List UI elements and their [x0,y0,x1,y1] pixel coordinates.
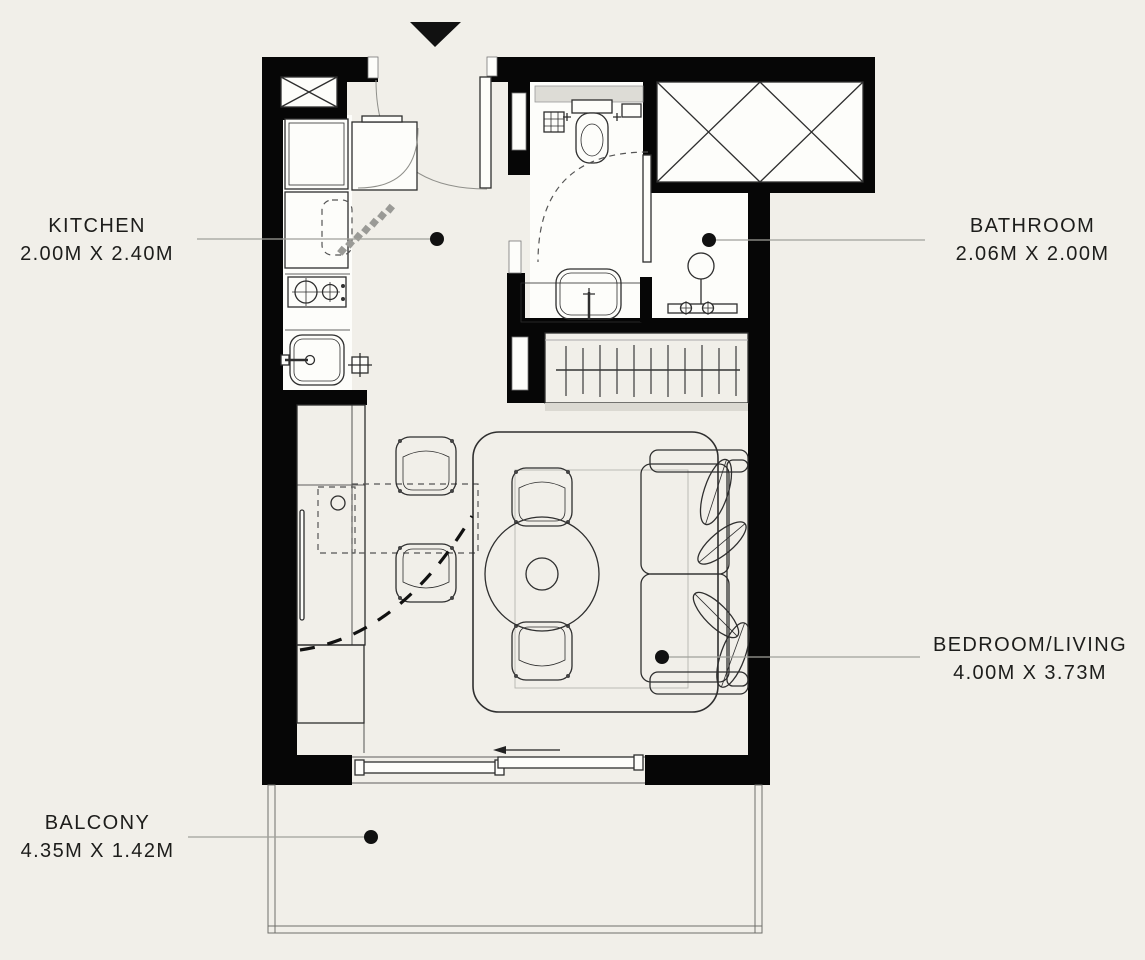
bedroom-living-label: BEDROOM/LIVING 4.00M X 3.73M [925,631,1135,687]
living-area [297,405,756,753]
balcony-label: BALCONY 4.35M X 1.42M [10,809,185,865]
wall [863,82,875,193]
wall [507,318,748,333]
door-pocket [512,337,528,390]
door-pocket [512,93,526,150]
corner-duct [281,77,337,107]
sofa-armrest [650,672,748,694]
wall [643,182,873,193]
area-rug [473,432,718,712]
desk-handle [300,510,304,620]
sliding-door-panel [357,762,502,773]
under-desk-unit-dashed [318,487,355,553]
elevator-shaft [657,82,863,182]
bathroom-door-leaf [643,155,651,262]
balcony-label-name: BALCONY [10,809,185,837]
balcony-label-dims: 4.35M X 1.42M [10,837,185,865]
wall [262,82,283,402]
bedroom-leader-dot [655,650,669,664]
door-jamb [509,241,521,273]
kitchen-label-dims: 2.00M X 2.40M [12,240,182,268]
round-table [485,517,599,631]
entry-arrow-icon [410,22,461,47]
door-jamb [368,57,378,78]
balcony-leader-dot [364,830,378,844]
entry-door-leaf [480,77,491,188]
wall [645,755,770,785]
sofa-seat [641,574,729,682]
wall [262,402,297,755]
kitchen-hob [288,277,346,307]
floor-plan-page: { "colors":{ "background":"#f1efe9","wal… [0,0,1145,960]
wall [262,755,352,785]
sofa-back [727,460,748,686]
wall-box [622,104,641,117]
balcony-railing [268,785,762,933]
wall [507,273,525,318]
kitchen-peninsula [352,122,417,190]
kitchen-fridge [285,119,348,189]
wardrobe-hangers [566,345,736,397]
kitchen-label: KITCHEN 2.00M X 2.40M [12,212,182,268]
round-table-center [526,558,558,590]
wall [487,57,875,82]
wall [748,333,770,755]
door-jamb [487,57,497,76]
wall-socket [348,353,372,377]
sliding-direction-arrow [493,746,560,754]
bathroom-label-name: BATHROOM [940,212,1125,240]
bathroom-leader-dot [702,233,716,247]
desk-cabinet [297,645,364,723]
wardrobe-track [545,403,748,411]
dining-chair [396,437,456,495]
wall [748,193,770,333]
wardrobe [545,333,748,411]
desk-counter [297,405,365,645]
sliding-door-panel [498,757,642,768]
bathroom-label-dims: 2.06M X 2.00M [940,240,1125,268]
bedroom-living-label-name: BEDROOM/LIVING [925,631,1135,659]
divider-wall [640,277,652,322]
kitchen-label-name: KITCHEN [12,212,182,240]
sofa-armrest [650,450,748,472]
sliding-door [352,746,645,783]
kitchen-leader-dot [430,232,444,246]
kitchen-peninsula-lip [362,116,402,122]
bedroom-living-label-dims: 4.00M X 3.73M [925,659,1135,687]
bathroom-label: BATHROOM 2.06M X 2.00M [940,212,1125,268]
